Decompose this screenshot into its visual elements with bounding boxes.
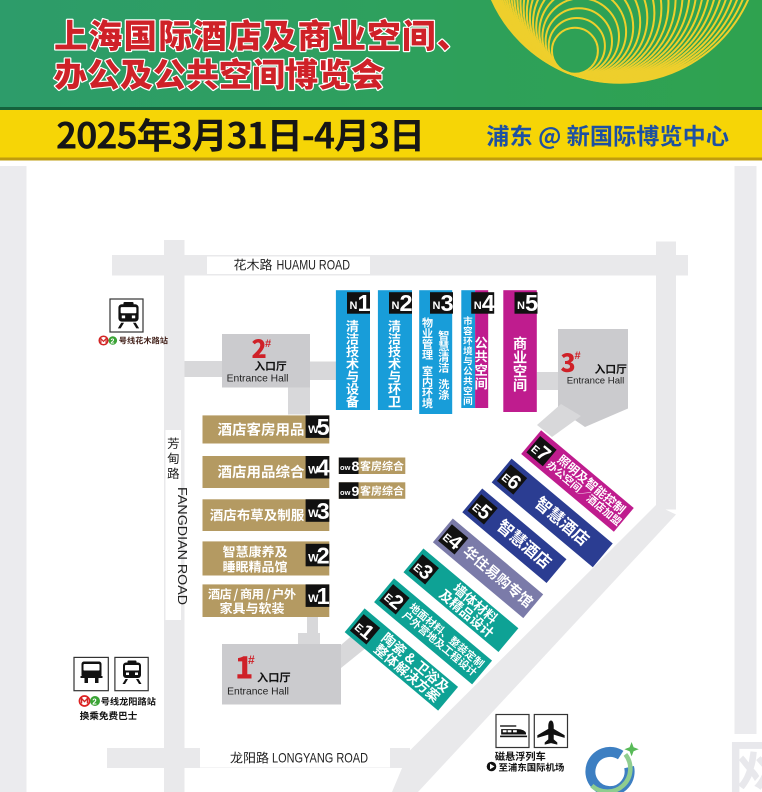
- svg-text:ow: ow: [340, 488, 351, 497]
- svg-text:Entrance Hall: Entrance Hall: [567, 376, 625, 387]
- svg-text:3: 3: [441, 290, 454, 316]
- svg-text:ow: ow: [340, 463, 351, 472]
- svg-text:Entrance Hall: Entrance Hall: [227, 687, 289, 698]
- svg-text:2: 2: [317, 542, 330, 568]
- svg-text:5: 5: [317, 414, 330, 440]
- svg-text:N: N: [350, 300, 358, 312]
- svg-text:FANGDIAN ROAD: FANGDIAN ROAD: [175, 487, 190, 605]
- svg-text:HUAMU ROAD: HUAMU ROAD: [277, 257, 351, 273]
- svg-text:N: N: [517, 300, 525, 312]
- svg-text:5: 5: [525, 290, 538, 316]
- svg-text:2: 2: [400, 290, 413, 316]
- svg-text:9: 9: [352, 483, 360, 499]
- svg-text:LONGYANG ROAD: LONGYANG ROAD: [272, 750, 368, 766]
- svg-text:#: #: [265, 338, 271, 350]
- svg-text:Entrance Hall: Entrance Hall: [227, 374, 289, 385]
- svg-text:2: 2: [111, 339, 115, 346]
- svg-text:N: N: [392, 300, 400, 312]
- svg-text:4: 4: [317, 455, 330, 481]
- svg-text:1: 1: [317, 583, 330, 609]
- svg-text:4: 4: [482, 290, 495, 316]
- svg-text:3: 3: [317, 498, 330, 524]
- svg-text:8: 8: [352, 458, 360, 474]
- svg-text:2: 2: [92, 698, 97, 707]
- svg-text:1: 1: [358, 290, 371, 316]
- svg-text:#: #: [248, 653, 255, 667]
- svg-text:N: N: [433, 300, 441, 312]
- svg-text:N: N: [474, 300, 482, 312]
- svg-text:#: #: [575, 350, 581, 362]
